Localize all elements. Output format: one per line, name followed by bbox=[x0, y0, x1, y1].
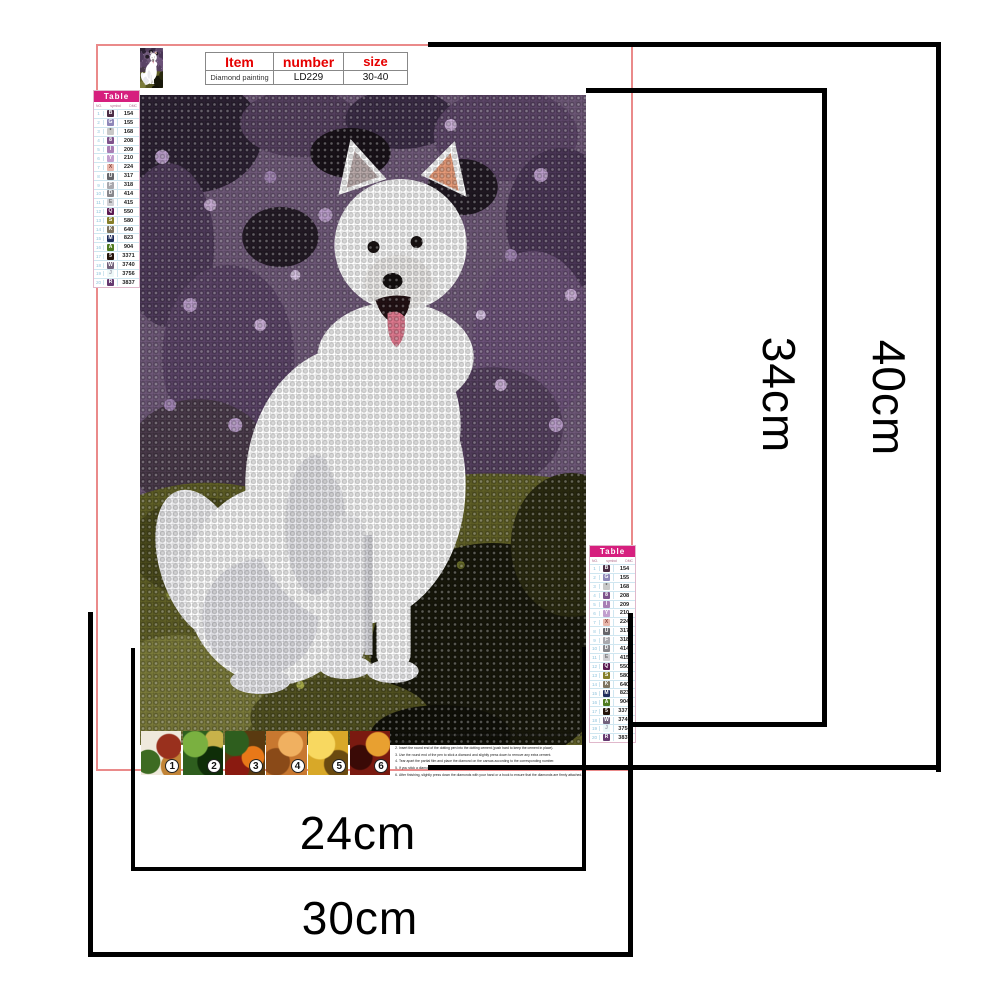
legend-symbol-cell: I bbox=[600, 601, 614, 608]
legend-row-number: 8 bbox=[590, 629, 600, 634]
legend-row: 9F318 bbox=[94, 180, 139, 189]
instruction-line-number: 4. bbox=[392, 758, 399, 765]
instruction-step-photos: 123456 bbox=[141, 731, 390, 775]
step-number-badge: 1 bbox=[165, 759, 179, 773]
spec-value-item: Diamond painting bbox=[206, 71, 274, 85]
instruction-line-number: 6. bbox=[392, 772, 399, 779]
step-photo: 2 bbox=[183, 731, 223, 775]
legend-row: 1753371 bbox=[94, 251, 139, 260]
legend-symbol-cell: W bbox=[600, 717, 614, 724]
legend-symbol-swatch: J bbox=[107, 270, 114, 277]
legend-symbol-swatch: S bbox=[107, 217, 114, 224]
legend-dmc-number: 318 bbox=[118, 182, 139, 188]
legend-symbol-swatch: F bbox=[603, 637, 610, 644]
legend-symbol-swatch: I bbox=[603, 601, 610, 608]
legend-symbol-cell: X bbox=[104, 164, 118, 171]
legend-symbol-swatch: D bbox=[603, 645, 610, 652]
spec-value-size: 30-40 bbox=[344, 71, 408, 85]
legend-symbol-cell: F bbox=[600, 637, 614, 644]
legend-symbol-cell: M bbox=[600, 690, 614, 697]
legend-dmc-number: 210 bbox=[118, 155, 139, 161]
step-number-badge: 6 bbox=[374, 759, 388, 773]
legend-symbol-cell: E bbox=[600, 654, 614, 661]
legend-row-number: 16 bbox=[590, 700, 600, 705]
product-thumbnail bbox=[140, 48, 163, 88]
product-infographic: Item number size Diamond painting LD229 … bbox=[0, 0, 1001, 1001]
legend-row-number: 2 bbox=[590, 575, 600, 580]
legend-symbol-swatch: X bbox=[107, 164, 114, 171]
legend-symbol-swatch: K bbox=[107, 226, 114, 233]
legend-row-number: 11 bbox=[590, 655, 600, 660]
instruction-line-number: 5. bbox=[392, 765, 399, 772]
measure-line-24cm-bottom bbox=[131, 867, 586, 871]
legend-row-number: 15 bbox=[590, 691, 600, 696]
legend-row-number: 12 bbox=[590, 664, 600, 669]
legend-row-number: 11 bbox=[94, 200, 104, 205]
legend-row-number: 15 bbox=[94, 236, 104, 241]
legend-row-number: 20 bbox=[94, 280, 104, 285]
legend-symbol-swatch: M bbox=[107, 235, 114, 242]
legend-row-number: 13 bbox=[94, 218, 104, 223]
legend-symbol-cell: J bbox=[104, 270, 118, 277]
legend-symbol-cell: S bbox=[600, 672, 614, 679]
legend-symbol-cell: U bbox=[600, 628, 614, 635]
legend-symbol-swatch: Q bbox=[603, 663, 610, 670]
measure-line-24cm-left bbox=[131, 648, 135, 871]
legend-row: 5I209 bbox=[590, 600, 635, 609]
legend-dmc-number: 823 bbox=[118, 235, 139, 241]
legend-dmc-number: 3756 bbox=[118, 271, 139, 277]
legend-col-no: NO. bbox=[592, 559, 598, 563]
legend-symbol-cell: G bbox=[600, 574, 614, 581]
legend-row: 3*168 bbox=[94, 127, 139, 136]
legend-row-number: 17 bbox=[94, 254, 104, 259]
legend-row-number: 7 bbox=[590, 620, 600, 625]
legend-title: Table bbox=[94, 91, 139, 102]
legend-symbol-cell: F bbox=[104, 182, 118, 189]
step-photo: 6 bbox=[350, 731, 390, 775]
legend-dmc-number: 580 bbox=[118, 218, 139, 224]
legend-symbol-swatch: E bbox=[107, 199, 114, 206]
legend-symbol-swatch: Y bbox=[107, 155, 114, 162]
legend-row-number: 10 bbox=[590, 646, 600, 651]
instruction-line: 1.Refer to the comparison table on the c… bbox=[392, 732, 592, 745]
legend-row-number: 18 bbox=[590, 718, 600, 723]
legend-symbol-swatch: F bbox=[107, 182, 114, 189]
legend-row: 18W3740 bbox=[94, 260, 139, 269]
legend-symbol-swatch: E bbox=[603, 654, 610, 661]
instruction-line-number: 2. bbox=[392, 745, 399, 752]
legend-dmc-number: 154 bbox=[118, 111, 139, 117]
legend-col-dmc: DMC bbox=[129, 104, 137, 108]
legend-symbol-cell: M bbox=[104, 235, 118, 242]
legend-row-number: 13 bbox=[590, 673, 600, 678]
legend-column-headers: NO. symbol DMC bbox=[94, 102, 139, 109]
legend-row-number: 12 bbox=[94, 209, 104, 214]
legend-symbol-swatch: B bbox=[603, 565, 610, 572]
measure-line-34cm-top bbox=[586, 88, 827, 93]
legend-row: 2G155 bbox=[590, 573, 635, 582]
legend-symbol-cell: D bbox=[600, 645, 614, 652]
legend-row: 20R3837 bbox=[94, 278, 139, 287]
legend-row-number: 9 bbox=[94, 183, 104, 188]
legend-row: 13S580 bbox=[94, 216, 139, 225]
legend-row-number: 6 bbox=[590, 611, 600, 616]
legend-row: 3*168 bbox=[590, 582, 635, 591]
instruction-line-number: 3. bbox=[392, 752, 399, 759]
legend-symbol-cell: 5 bbox=[600, 708, 614, 715]
legend-symbol-swatch: J bbox=[603, 725, 610, 732]
legend-symbol-swatch: W bbox=[107, 262, 114, 269]
legend-row-number: 19 bbox=[590, 726, 600, 731]
legend-rows: 1B1542G1553*168482085I2096Y2107X2248U317… bbox=[94, 109, 139, 287]
legend-row: 48208 bbox=[94, 136, 139, 145]
measure-line-30cm-bottom bbox=[88, 952, 633, 957]
legend-symbol-swatch: M bbox=[603, 690, 610, 697]
legend-row-number: 3 bbox=[590, 584, 600, 589]
legend-row: 14K640 bbox=[94, 225, 139, 234]
legend-col-dmc: DMC bbox=[625, 559, 633, 563]
spec-header-size: size bbox=[344, 53, 408, 71]
legend-row: 19J3756 bbox=[94, 269, 139, 278]
legend-symbol-swatch: U bbox=[603, 628, 610, 635]
legend-symbol-cell: Q bbox=[600, 663, 614, 670]
legend-symbol-swatch: S bbox=[603, 672, 610, 679]
legend-symbol-cell: K bbox=[104, 226, 118, 233]
label-inner-width: 24cm bbox=[278, 803, 438, 863]
legend-dmc-number: 209 bbox=[118, 147, 139, 153]
legend-dmc-number: 640 bbox=[118, 227, 139, 233]
legend-symbol-swatch: * bbox=[107, 128, 114, 135]
legend-symbol-cell: R bbox=[600, 734, 614, 741]
legend-symbol-swatch: 5 bbox=[603, 708, 610, 715]
legend-dmc-number: 208 bbox=[118, 138, 139, 144]
legend-row-number: 14 bbox=[590, 682, 600, 687]
legend-row-number: 18 bbox=[94, 263, 104, 268]
legend-symbol-swatch: K bbox=[603, 681, 610, 688]
measure-line-40cm-bottom bbox=[428, 765, 941, 770]
legend-dmc-number: 3371 bbox=[118, 253, 139, 259]
legend-dmc-number: 209 bbox=[614, 602, 635, 608]
step-photo: 4 bbox=[266, 731, 306, 775]
legend-symbol-cell: A bbox=[600, 699, 614, 706]
legend-row-number: 6 bbox=[94, 156, 104, 161]
step-number-badge: 3 bbox=[249, 759, 263, 773]
spec-header-item: Item bbox=[206, 53, 274, 71]
legend-symbol-cell: E bbox=[104, 199, 118, 206]
legend-row: 1B154 bbox=[590, 564, 635, 573]
measure-line-34cm-right bbox=[822, 88, 827, 727]
legend-col-symbol: symbol bbox=[606, 559, 617, 563]
legend-row-number: 16 bbox=[94, 245, 104, 250]
legend-row-number: 3 bbox=[94, 129, 104, 134]
legend-symbol-cell: G bbox=[104, 119, 118, 126]
legend-row-number: 10 bbox=[94, 191, 104, 196]
legend-symbol-cell: I bbox=[104, 146, 118, 153]
legend-symbol-cell: A bbox=[104, 244, 118, 251]
legend-row-number: 7 bbox=[94, 165, 104, 170]
legend-row: 6Y210 bbox=[94, 153, 139, 162]
legend-symbol-swatch: * bbox=[603, 583, 610, 590]
legend-dmc-number: 317 bbox=[118, 173, 139, 179]
legend-title: Table bbox=[590, 546, 635, 557]
instruction-line: 4.Tear apart the partial film and place … bbox=[392, 758, 592, 765]
measure-line-34cm-bottom bbox=[628, 722, 827, 727]
legend-row-number: 4 bbox=[94, 138, 104, 143]
legend-row-number: 5 bbox=[590, 602, 600, 607]
legend-symbol-swatch: W bbox=[603, 717, 610, 724]
legend-symbol-cell: U bbox=[104, 173, 118, 180]
measure-line-30cm-right bbox=[628, 613, 633, 957]
label-inner-height: 34cm bbox=[749, 310, 809, 480]
spec-value-number: LD229 bbox=[274, 71, 344, 85]
legend-symbol-swatch: 8 bbox=[603, 592, 610, 599]
legend-symbol-swatch: U bbox=[107, 173, 114, 180]
legend-row-number: 19 bbox=[94, 271, 104, 276]
legend-row-number: 2 bbox=[94, 120, 104, 125]
instruction-line-number: 1. bbox=[392, 732, 399, 745]
legend-symbol-swatch: A bbox=[107, 244, 114, 251]
instruction-line-text: Tear apart the partial film and place th… bbox=[399, 758, 592, 765]
legend-row: 10D414 bbox=[94, 189, 139, 198]
legend-symbol-swatch: D bbox=[107, 190, 114, 197]
measure-line-30cm-left bbox=[88, 612, 93, 957]
step-photo: 5 bbox=[308, 731, 348, 775]
samoyed-dog-artwork bbox=[140, 95, 586, 745]
legend-row: 11E415 bbox=[94, 198, 139, 207]
legend-symbol-swatch: 5 bbox=[107, 253, 114, 260]
legend-dmc-number: 904 bbox=[118, 244, 139, 250]
legend-dmc-number: 224 bbox=[118, 164, 139, 170]
legend-symbol-cell: Q bbox=[104, 208, 118, 215]
legend-row: 5I209 bbox=[94, 145, 139, 154]
legend-symbol-cell: R bbox=[104, 279, 118, 286]
label-outer-height: 40cm bbox=[859, 313, 919, 483]
diamond-painting-chart bbox=[140, 95, 586, 745]
legend-col-no: NO. bbox=[96, 104, 102, 108]
legend-dmc-number: 415 bbox=[118, 200, 139, 206]
legend-symbol-swatch: R bbox=[107, 279, 114, 286]
instruction-line: 2.Insert the round end of the dotting pe… bbox=[392, 745, 592, 752]
legend-symbol-swatch: Y bbox=[603, 610, 610, 617]
legend-symbol-cell: S bbox=[104, 217, 118, 224]
legend-dmc-number: 168 bbox=[614, 584, 635, 590]
legend-row: 2G155 bbox=[94, 118, 139, 127]
spec-table: Item number size Diamond painting LD229 … bbox=[205, 52, 408, 85]
step-photo: 1 bbox=[141, 731, 181, 775]
legend-symbol-cell: X bbox=[600, 619, 614, 626]
legend-row-number: 14 bbox=[94, 227, 104, 232]
measure-line-24cm-right bbox=[582, 647, 586, 871]
instruction-line: 6.After finishing, slightly press down t… bbox=[392, 772, 592, 779]
legend-symbol-cell: J bbox=[600, 725, 614, 732]
legend-symbol-swatch: Q bbox=[107, 208, 114, 215]
legend-column-headers: NO. symbol DMC bbox=[590, 557, 635, 564]
legend-dmc-number: 154 bbox=[614, 566, 635, 572]
instruction-line-text: After finishing, slightly press down the… bbox=[399, 772, 592, 779]
legend-symbol-swatch: B bbox=[107, 110, 114, 117]
instruction-line-text: Refer to the comparison table on the can… bbox=[399, 732, 592, 745]
legend-dmc-number: 168 bbox=[118, 129, 139, 135]
legend-symbol-cell: B bbox=[600, 565, 614, 572]
step-number-badge: 4 bbox=[291, 759, 305, 773]
legend-row: 48208 bbox=[590, 591, 635, 600]
legend-dmc-number: 3837 bbox=[118, 280, 139, 286]
legend-row: 12Q550 bbox=[94, 207, 139, 216]
legend-symbol-cell: 8 bbox=[104, 137, 118, 144]
legend-symbol-swatch: A bbox=[603, 699, 610, 706]
legend-row: 15M823 bbox=[94, 233, 139, 242]
color-legend-left: Table NO. symbol DMC 1B1542G1553*1684820… bbox=[93, 90, 140, 288]
legend-symbol-swatch: X bbox=[603, 619, 610, 626]
legend-symbol-cell: * bbox=[600, 583, 614, 590]
legend-symbol-swatch: G bbox=[603, 574, 610, 581]
legend-dmc-number: 550 bbox=[118, 209, 139, 215]
legend-symbol-cell: B bbox=[104, 110, 118, 117]
legend-col-symbol: symbol bbox=[110, 104, 121, 108]
step-number-badge: 5 bbox=[332, 759, 346, 773]
instruction-line: 3.Use the round end of the pen to stick … bbox=[392, 752, 592, 759]
legend-symbol-cell: W bbox=[104, 262, 118, 269]
legend-symbol-swatch: R bbox=[603, 734, 610, 741]
legend-dmc-number: 414 bbox=[118, 191, 139, 197]
measure-line-40cm-right bbox=[936, 42, 941, 772]
legend-dmc-number: 155 bbox=[118, 120, 139, 126]
legend-symbol-cell: Y bbox=[600, 610, 614, 617]
legend-symbol-cell: K bbox=[600, 681, 614, 688]
legend-row-number: 4 bbox=[590, 593, 600, 598]
legend-symbol-swatch: I bbox=[107, 146, 114, 153]
legend-row-number: 8 bbox=[94, 174, 104, 179]
legend-dmc-number: 208 bbox=[614, 593, 635, 599]
measure-line-40cm-top bbox=[428, 42, 941, 47]
instruction-line-text: Insert the round end of the dotting pen … bbox=[399, 745, 592, 752]
instruction-line-text: Use the round end of the pen to stick a … bbox=[399, 752, 592, 759]
legend-symbol-cell: * bbox=[104, 128, 118, 135]
legend-row: 8U317 bbox=[94, 171, 139, 180]
legend-row-number: 9 bbox=[590, 638, 600, 643]
legend-symbol-cell: D bbox=[104, 190, 118, 197]
legend-symbol-cell: Y bbox=[104, 155, 118, 162]
legend-symbol-cell: 8 bbox=[600, 592, 614, 599]
legend-row-number: 17 bbox=[590, 709, 600, 714]
legend-dmc-number: 3740 bbox=[118, 262, 139, 268]
step-photo: 3 bbox=[225, 731, 265, 775]
legend-row-number: 1 bbox=[94, 111, 104, 116]
legend-row: 16A904 bbox=[94, 242, 139, 251]
legend-symbol-swatch: G bbox=[107, 119, 114, 126]
dog-thumbnail-image bbox=[140, 48, 163, 88]
legend-row-number: 5 bbox=[94, 147, 104, 152]
legend-row-number: 1 bbox=[590, 566, 600, 571]
label-outer-width: 30cm bbox=[280, 888, 440, 948]
legend-row: 1B154 bbox=[94, 109, 139, 118]
spec-header-number: number bbox=[274, 53, 344, 71]
legend-dmc-number: 155 bbox=[614, 575, 635, 581]
legend-row: 7X224 bbox=[94, 162, 139, 171]
legend-symbol-cell: 5 bbox=[104, 253, 118, 260]
legend-symbol-swatch: 8 bbox=[107, 137, 114, 144]
step-number-badge: 2 bbox=[207, 759, 221, 773]
